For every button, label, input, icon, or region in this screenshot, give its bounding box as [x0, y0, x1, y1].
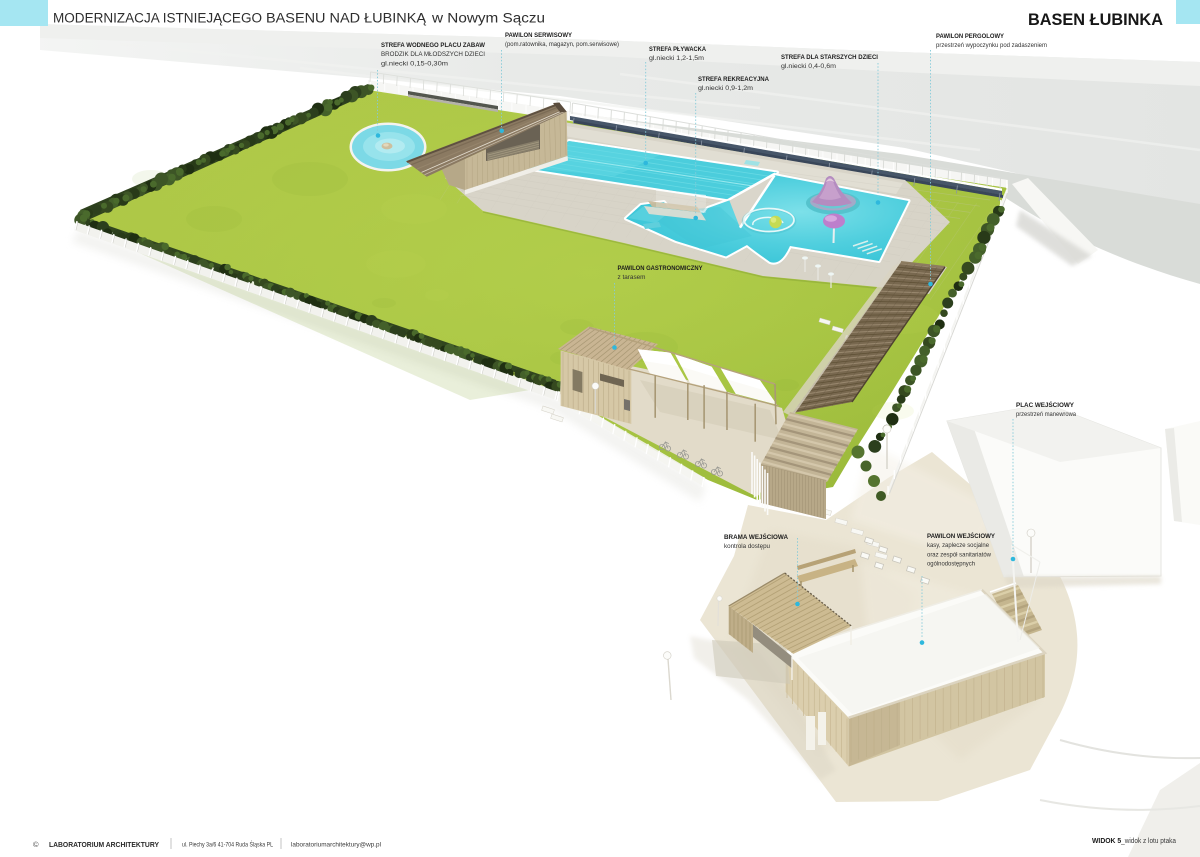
svg-text:laboratoriumarchitektury@wp.pl: laboratoriumarchitektury@wp.pl	[291, 843, 381, 849]
svg-text:BRODZIK DLA MŁODSZYCH DZIECI: BRODZIK DLA MŁODSZYCH DZIECI	[381, 51, 485, 58]
svg-text:kasy, zaplecze socjalne: kasy, zaplecze socjalne	[927, 542, 990, 549]
svg-text:PAWILON WEJŚCIOWY: PAWILON WEJŚCIOWY	[927, 533, 996, 540]
svg-text:PAWILON SERWISOWY: PAWILON SERWISOWY	[505, 32, 573, 39]
svg-text:gl.niecki 0,15-0,30m: gl.niecki 0,15-0,30m	[381, 60, 448, 67]
svg-text:BASEN ŁUBINKA: BASEN ŁUBINKA	[1028, 10, 1163, 29]
svg-text:PAWILON PERGOLOWY: PAWILON PERGOLOWY	[936, 33, 1005, 40]
svg-text:ul. Piechy 3a/6 41-704 Ruda Śl: ul. Piechy 3a/6 41-704 Ruda Śląska PL	[182, 841, 274, 849]
svg-text:LABORATORIUM ARCHITEKTURY: LABORATORIUM ARCHITEKTURY	[49, 842, 159, 849]
svg-text:gl.niecki 1,2-1,5m: gl.niecki 1,2-1,5m	[649, 55, 704, 62]
svg-text:BASENU NAD ŁUBINKĄ: BASENU NAD ŁUBINKĄ	[266, 11, 427, 26]
svg-text:STREFA DLA STARSZYCH DZIECI: STREFA DLA STARSZYCH DZIECI	[781, 54, 878, 61]
svg-text:przestrzeń wypoczynku pod zada: przestrzeń wypoczynku pod zadaszeniem	[936, 42, 1047, 49]
svg-text:oraz zespół sanitariatów: oraz zespół sanitariatów	[927, 551, 991, 558]
svg-text:©: ©	[33, 840, 39, 849]
svg-text:gl.niecki 0,4-0,6m: gl.niecki 0,4-0,6m	[781, 63, 836, 70]
svg-text:STREFA WODNEGO PLACU ZABAW: STREFA WODNEGO PLACU ZABAW	[381, 42, 485, 49]
svg-text:gl.niecki 0,9-1,2m: gl.niecki 0,9-1,2m	[698, 85, 753, 92]
svg-text:przestrzeń manewrowa: przestrzeń manewrowa	[1016, 411, 1077, 418]
svg-text:ogólnodostępnych: ogólnodostępnych	[927, 561, 976, 568]
svg-text:z tarasem: z tarasem	[618, 274, 646, 281]
svg-text:w Nowym Sączu: w Nowym Sączu	[431, 11, 545, 26]
svg-text:PAWILON GASTRONOMICZNY: PAWILON GASTRONOMICZNY	[618, 265, 704, 272]
svg-text:WIDOK 5_widok z lotu ptaka: WIDOK 5_widok z lotu ptaka	[1092, 836, 1176, 845]
svg-text:BRAMA WEJŚCIOWA: BRAMA WEJŚCIOWA	[724, 534, 789, 541]
svg-text:kontrola dostępu: kontrola dostępu	[724, 543, 771, 550]
svg-text:PLAC WEJŚCIOWY: PLAC WEJŚCIOWY	[1016, 402, 1075, 409]
svg-text:STREFA PŁYWACKA: STREFA PŁYWACKA	[649, 46, 706, 53]
svg-text:STREFA REKREACYJNA: STREFA REKREACYJNA	[698, 76, 770, 83]
svg-text:MODERNIZACJA ISTNIEJĄCEGO: MODERNIZACJA ISTNIEJĄCEGO	[53, 11, 262, 26]
svg-text:(pom.ratownika, magazyn, pom.s: (pom.ratownika, magazyn, pom.serwisowe)	[505, 41, 619, 48]
